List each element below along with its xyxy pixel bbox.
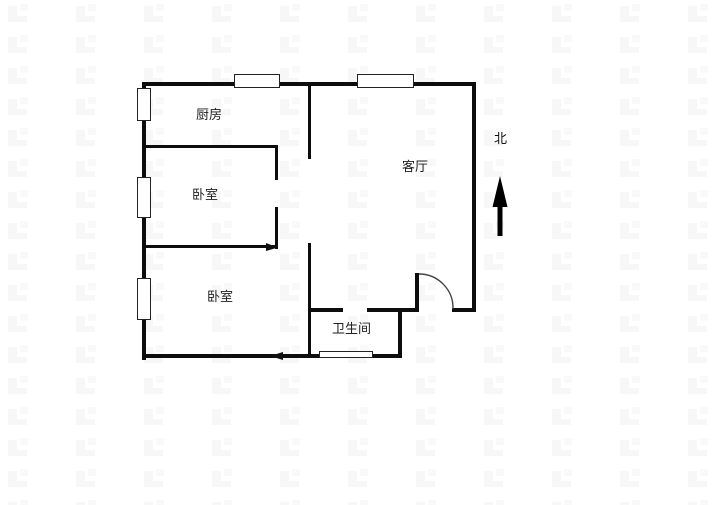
north-arrow-shaft — [498, 204, 503, 236]
divider-end-tick — [266, 243, 278, 251]
room-label-bedroom-1: 卧室 — [192, 188, 218, 202]
north-arrow-head — [493, 176, 508, 207]
north-arrow — [493, 176, 508, 236]
room-label-living: 客厅 — [402, 160, 428, 174]
overlay-layer — [0, 0, 720, 505]
room-label-bathroom: 卫生间 — [332, 322, 371, 336]
floor-plan: 厨房 卧室 客厅 卧室 卫生间 北 — [0, 0, 720, 505]
entry-door-arc — [419, 274, 453, 309]
room-label-bedroom-2: 卧室 — [207, 290, 233, 304]
room-label-kitchen: 厨房 — [196, 108, 222, 122]
bottom-wall-tick — [270, 352, 283, 360]
north-label: 北 — [494, 132, 507, 146]
